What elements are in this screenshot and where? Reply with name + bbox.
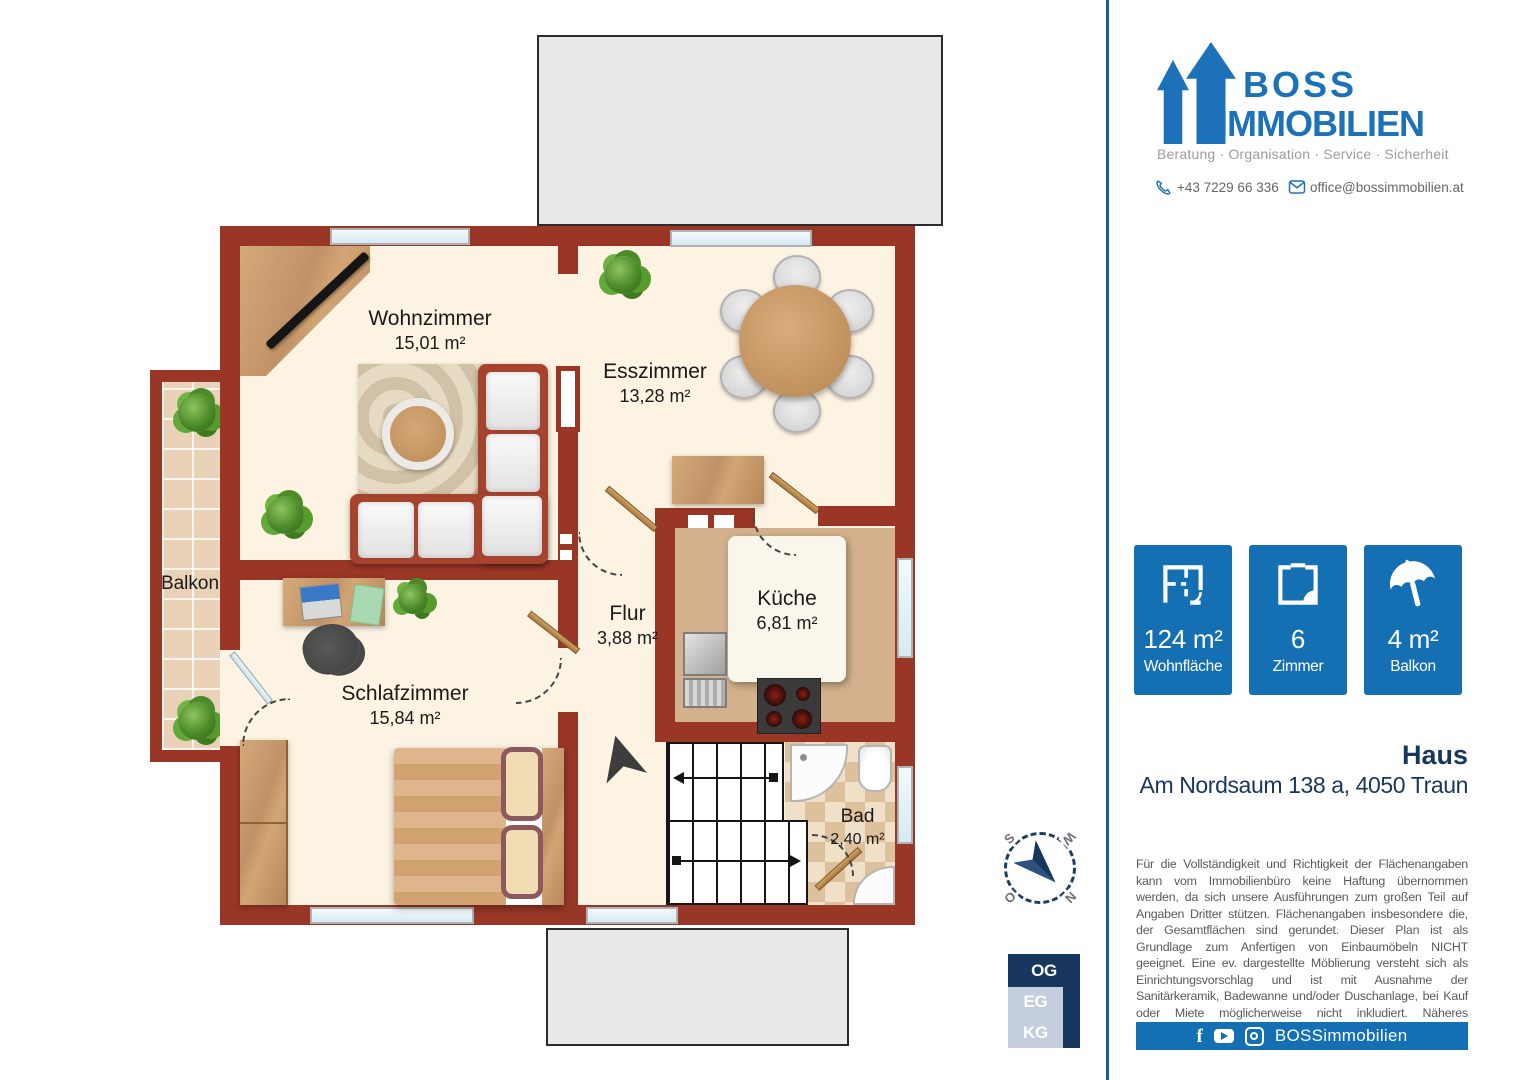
roof-area-bottom — [546, 928, 849, 1046]
burner — [796, 687, 810, 701]
wall-shaft-a — [560, 534, 572, 544]
bed-headboard — [542, 748, 564, 905]
sideboard — [672, 456, 764, 504]
burner — [792, 709, 812, 729]
dining-table — [739, 285, 851, 397]
stat-value: 124 m² — [1134, 624, 1232, 655]
bed — [394, 748, 564, 905]
floor-tab-og[interactable]: OG — [1008, 954, 1080, 987]
wall-shaft-b — [560, 550, 572, 560]
logo-text-line2: IMMOBILIEN — [1218, 103, 1424, 145]
wall-flur-kueche — [655, 528, 675, 742]
kitchen-floor-open — [728, 536, 846, 682]
logo-text-line1: BOSS — [1243, 64, 1357, 106]
floorplan-icon — [1155, 555, 1211, 615]
window-bottom-bedroom — [310, 907, 474, 924]
floor-tab-kg[interactable]: KG — [1008, 1017, 1063, 1048]
living-room-plant — [266, 496, 304, 534]
balcony-plant-top — [178, 394, 216, 432]
property-address: Am Nordsaum 138 a, 4050 Traun — [1136, 772, 1468, 799]
stat-badge-living-area: 124 m² Wohnfläche — [1134, 545, 1232, 695]
toilet — [858, 745, 892, 792]
kitchen-drainer — [683, 678, 727, 708]
logo-tagline: Beratung · Organisation · Service · Sich… — [1157, 146, 1457, 162]
sofa-cushion — [418, 502, 474, 558]
bedroom-plant — [398, 584, 428, 614]
green-folder — [350, 584, 385, 626]
stat-label: Zimmer — [1249, 658, 1347, 676]
stat-label: Balkon — [1364, 658, 1462, 676]
phone-number[interactable]: +43 7229 66 336 — [1177, 180, 1279, 195]
radiator-niche — [556, 366, 580, 432]
burner — [766, 711, 782, 727]
stat-badge-rooms: 6 Zimmer — [1249, 545, 1347, 695]
window-top-dining — [670, 230, 812, 247]
sofa-cushion — [486, 372, 540, 430]
stove — [757, 678, 821, 734]
pillow — [506, 830, 538, 894]
balcony-plant-bottom — [178, 702, 216, 740]
instagram-icon[interactable] — [1245, 1027, 1264, 1046]
email-icon — [1288, 179, 1306, 195]
stairs-lower-flight — [666, 820, 808, 905]
window-bottom-hall — [586, 907, 678, 924]
youtube-icon[interactable] — [1214, 1029, 1234, 1043]
sofa-cushion — [486, 434, 540, 492]
stat-badge-balcony: 4 m² Balkon — [1364, 545, 1462, 695]
roof-area-top — [537, 35, 943, 226]
compass: S W O N — [1000, 828, 1080, 908]
burner — [764, 684, 786, 706]
wardrobe-door-line — [240, 822, 286, 824]
bed-blanket — [394, 748, 506, 905]
footer-handle[interactable]: BOSSimmobilien — [1275, 1026, 1408, 1046]
stat-value: 4 m² — [1364, 624, 1462, 655]
sofa-cushion — [482, 496, 542, 556]
window-right-kitchen — [897, 558, 913, 658]
page: { "brand": { "line1": "BOSS", "line2": "… — [0, 0, 1527, 1080]
floor-tab-eg[interactable]: EG — [1008, 987, 1063, 1017]
wall-ess-kueche-right — [818, 506, 915, 526]
room-icon — [1270, 555, 1326, 615]
umbrella-icon — [1385, 555, 1441, 615]
stairs-arrow-down — [674, 860, 798, 862]
footer-social-bar: f BOSSimmobilien — [1136, 1022, 1468, 1050]
wardrobe — [240, 740, 288, 905]
window-right-bath — [897, 766, 913, 844]
disclaimer-text: Für die Vollständigkeit und Richtigkeit … — [1136, 856, 1468, 1038]
window-top-living — [330, 228, 470, 245]
pillow — [506, 752, 538, 816]
wall-wohn-ess-stub — [558, 246, 578, 274]
email-address[interactable]: office@bossimmobilien.at — [1310, 180, 1464, 195]
facebook-icon[interactable]: f — [1196, 1027, 1202, 1046]
stairs-arrow-up — [676, 777, 776, 779]
phone-icon — [1155, 179, 1172, 196]
coffee-table — [382, 398, 454, 470]
panel-divider — [1106, 0, 1109, 1080]
balcony-floor — [162, 382, 220, 750]
dining-plant — [604, 256, 642, 294]
property-type: Haus — [1136, 740, 1468, 771]
shower-drain — [800, 754, 807, 761]
stat-label: Wohnfläche — [1134, 658, 1232, 676]
sofa-cushion — [358, 502, 414, 558]
stat-value: 6 — [1249, 624, 1347, 655]
kitchen-sink — [683, 632, 727, 676]
logo-house-small-icon — [1157, 60, 1189, 144]
laptop — [299, 583, 342, 621]
